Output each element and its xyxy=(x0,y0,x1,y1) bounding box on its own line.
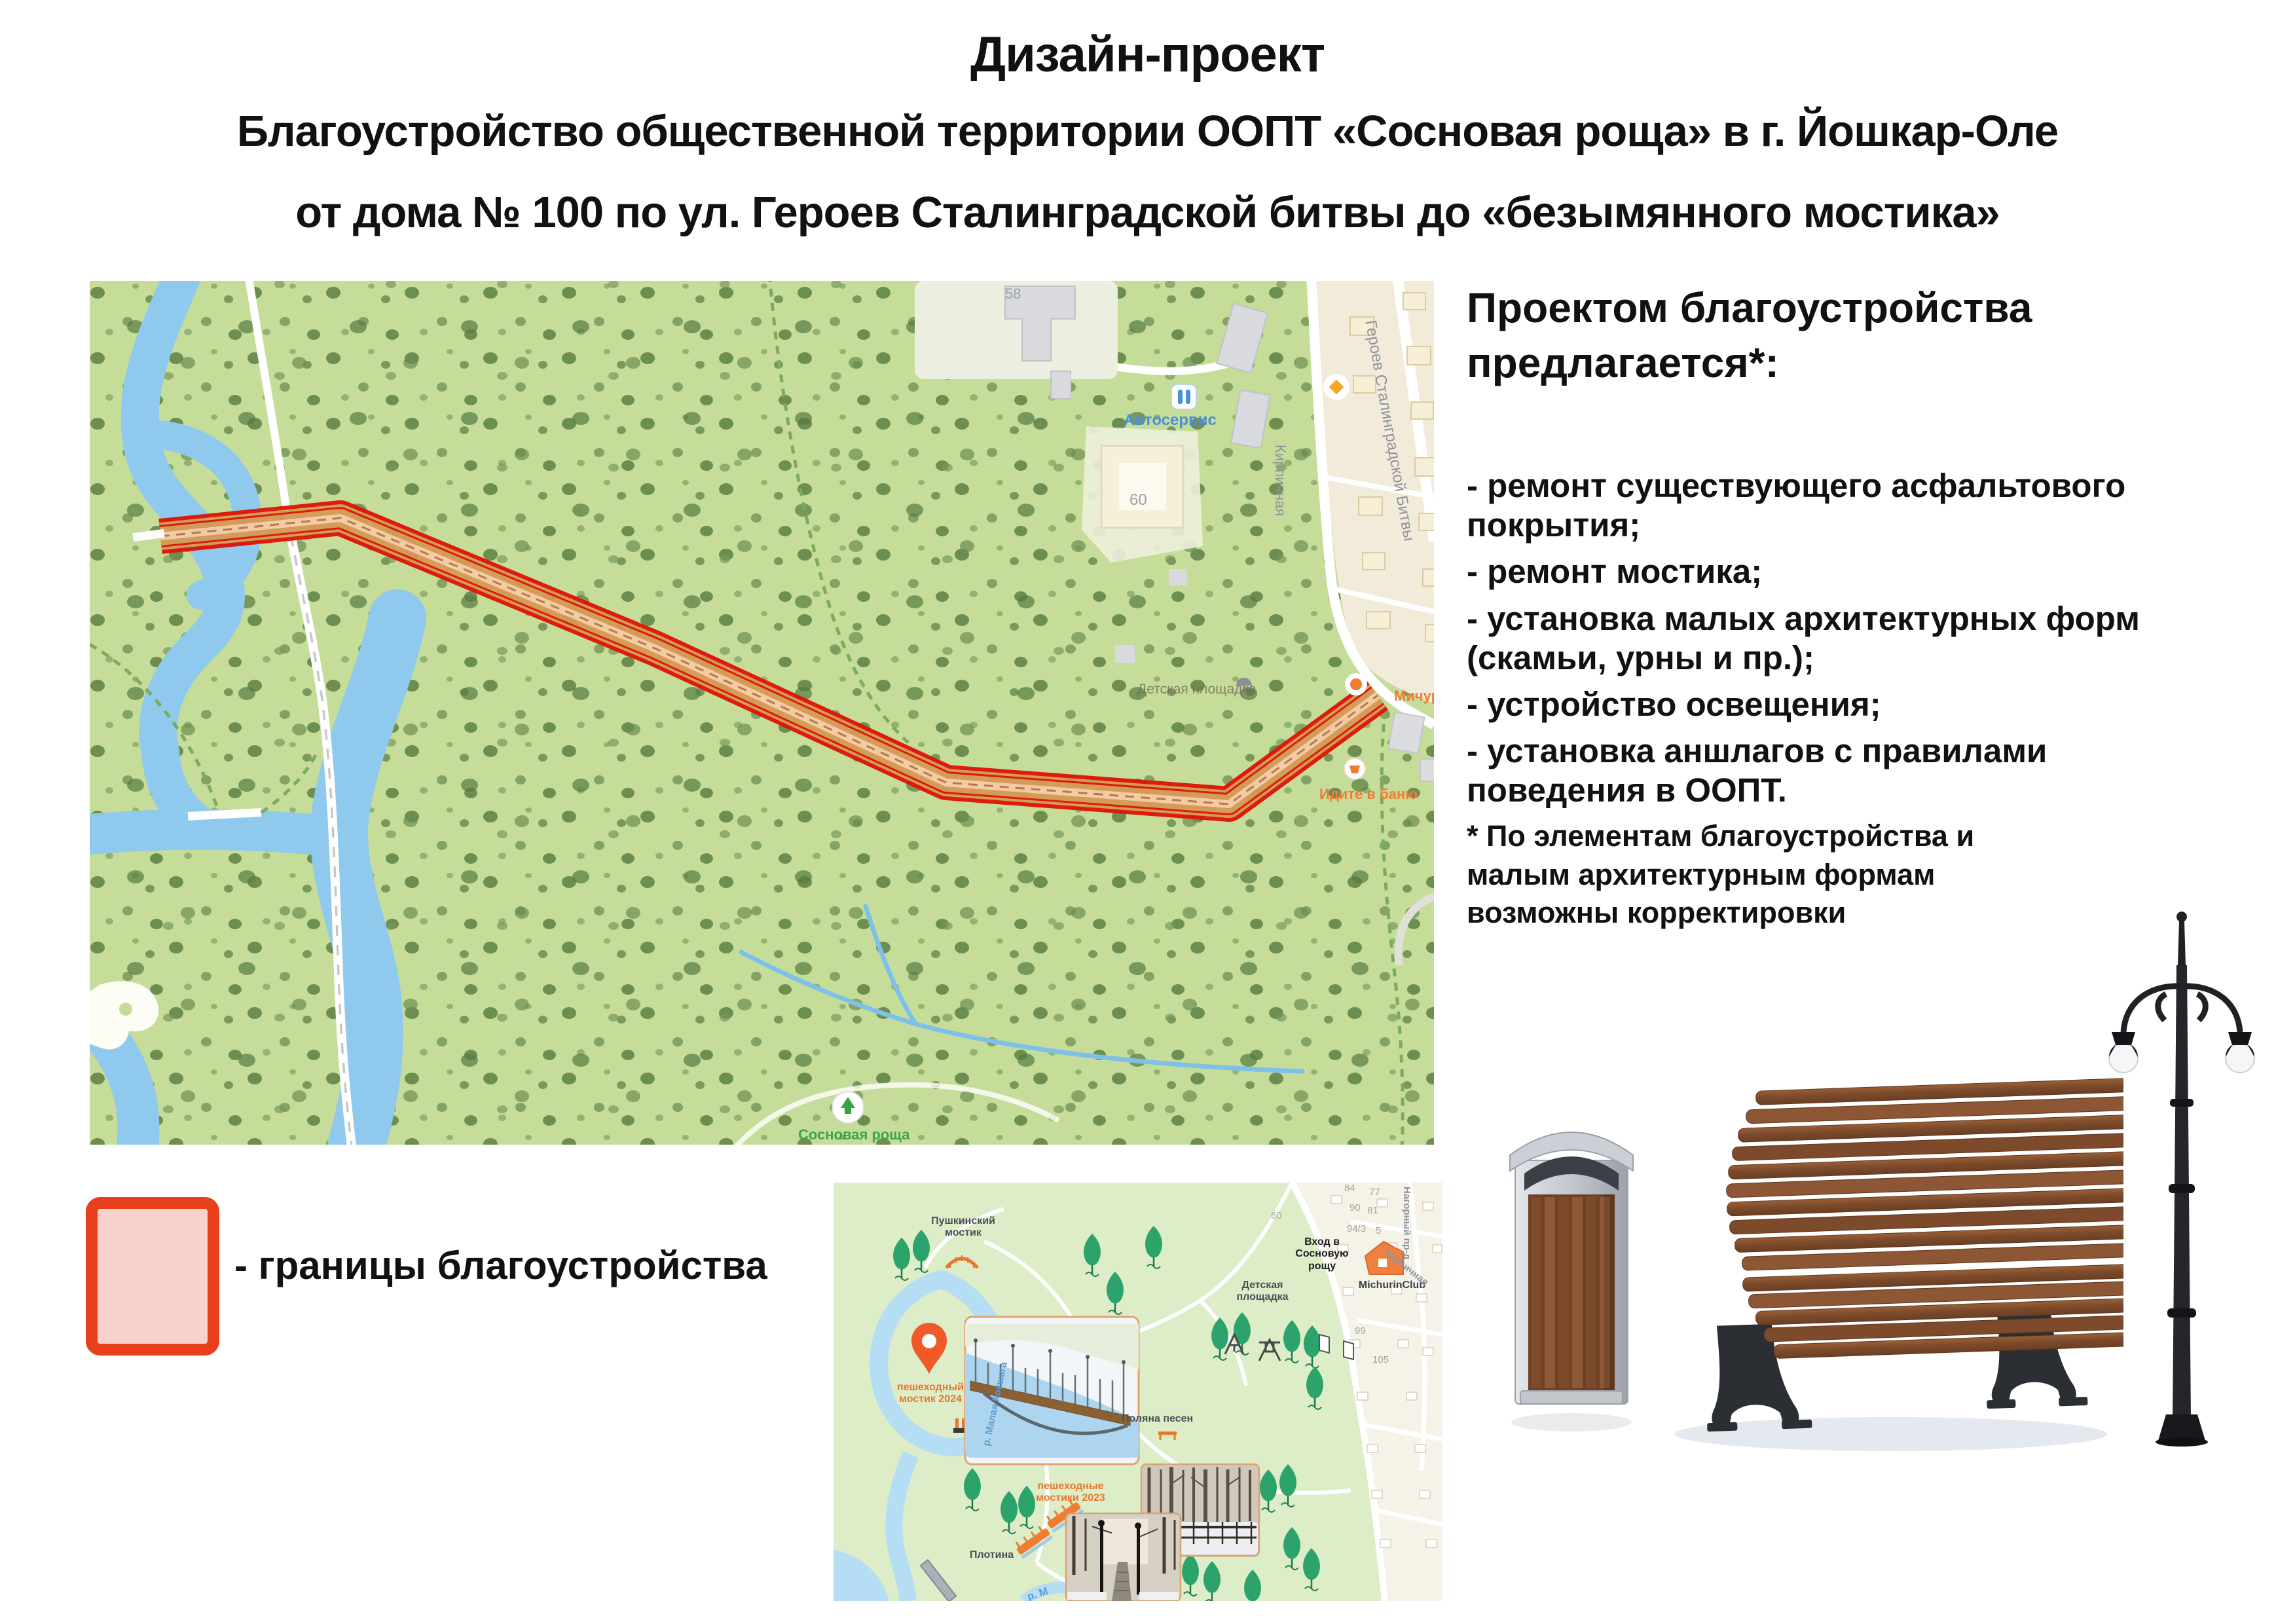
corridor-end-poi-icon xyxy=(1345,673,1367,695)
mini-number-81: 81 xyxy=(1367,1205,1378,1216)
grove-tree-icon xyxy=(832,1092,864,1123)
mini-label-pushkin: Пушкинский мостик xyxy=(917,1215,1009,1240)
mini-label-bridge-2024: пешеходный мостик 2024 xyxy=(896,1382,964,1406)
footnote: * По элементам благоустройства и малым а… xyxy=(1467,817,2082,932)
banya-icon xyxy=(1344,758,1365,779)
proposals-list: - ремонт существующего асфальтового покр… xyxy=(1467,466,2233,817)
map-label-58: 58 xyxy=(1005,286,1021,303)
mini-number-94-3: 94/3 xyxy=(1347,1223,1366,1234)
page-title: Дизайн-проект xyxy=(0,26,2295,83)
proposal-item: - ремонт мостика; xyxy=(1467,552,2233,591)
page-subtitle-2: от дома № 100 по ул. Героев Сталинградск… xyxy=(0,187,2295,238)
page-subtitle-1: Благоустройство общественной территории … xyxy=(0,106,2295,157)
mini-number-5: 5 xyxy=(1376,1225,1381,1236)
mini-label-dam: Плотина xyxy=(970,1549,1014,1561)
proposals-heading: Проектом благоустройства предлагается*: xyxy=(1467,280,2108,391)
lamp-pole xyxy=(2156,912,2208,1447)
map-label-grove: Сосновая роща xyxy=(798,1127,909,1143)
mini-street-nagorny: Нагорный пр-д xyxy=(1401,1187,1412,1260)
legend-label: - границы благоустройства xyxy=(234,1243,767,1288)
bench-image xyxy=(1636,1053,2123,1459)
map-label-playground: Детская площадка xyxy=(1137,682,1257,697)
proposal-item: - установка малых архитектурных форм (ск… xyxy=(1467,599,2233,678)
proposal-item: - ремонт существующего асфальтового покр… xyxy=(1467,466,2233,545)
mini-number-90: 90 xyxy=(1349,1202,1361,1213)
autoservice-icon xyxy=(1171,384,1196,409)
mini-number-60: 60 xyxy=(1271,1210,1282,1221)
mini-number-99: 99 xyxy=(1355,1325,1366,1337)
map-label-60: 60 xyxy=(1129,492,1147,509)
winter-photo-alley xyxy=(1066,1513,1181,1601)
map-label-michurin: Мичури xyxy=(1394,688,1434,705)
mini-number-105: 105 xyxy=(1372,1354,1389,1365)
main-map-canvas xyxy=(90,281,1434,1145)
main-map: 58 Автосервис 60 Кирпичная Героев Сталин… xyxy=(90,281,1434,1145)
mini-map: Пушкинский мостик пешеходный мостик 2024… xyxy=(834,1183,1442,1601)
mini-number-84: 84 xyxy=(1344,1183,1355,1194)
mini-number-77: 77 xyxy=(1369,1187,1380,1198)
poi-diamond-icon xyxy=(1323,374,1349,400)
map-street-kirpichnaya: Кирпичная xyxy=(1272,445,1288,516)
trash-bin-image xyxy=(1506,1095,1637,1435)
mini-label-playground: Детская площадка xyxy=(1226,1280,1298,1304)
map-label-banya: Идите в баню xyxy=(1319,786,1418,803)
proposal-item: - устройство освещения; xyxy=(1467,685,2233,724)
street-lamp-image xyxy=(2093,902,2271,1447)
mini-label-bridges-2023: пешеходные мостики 2023 xyxy=(1030,1481,1111,1505)
proposal-item: - установка аншлагов с правилами поведен… xyxy=(1467,731,2233,810)
mini-label-entrance: Вход в Сосновую рощу xyxy=(1285,1236,1359,1272)
map-label-autoservice: Автосервис xyxy=(1111,412,1229,430)
legend-swatch xyxy=(86,1197,219,1356)
mini-label-polyana: Поляна песен xyxy=(1122,1413,1193,1425)
